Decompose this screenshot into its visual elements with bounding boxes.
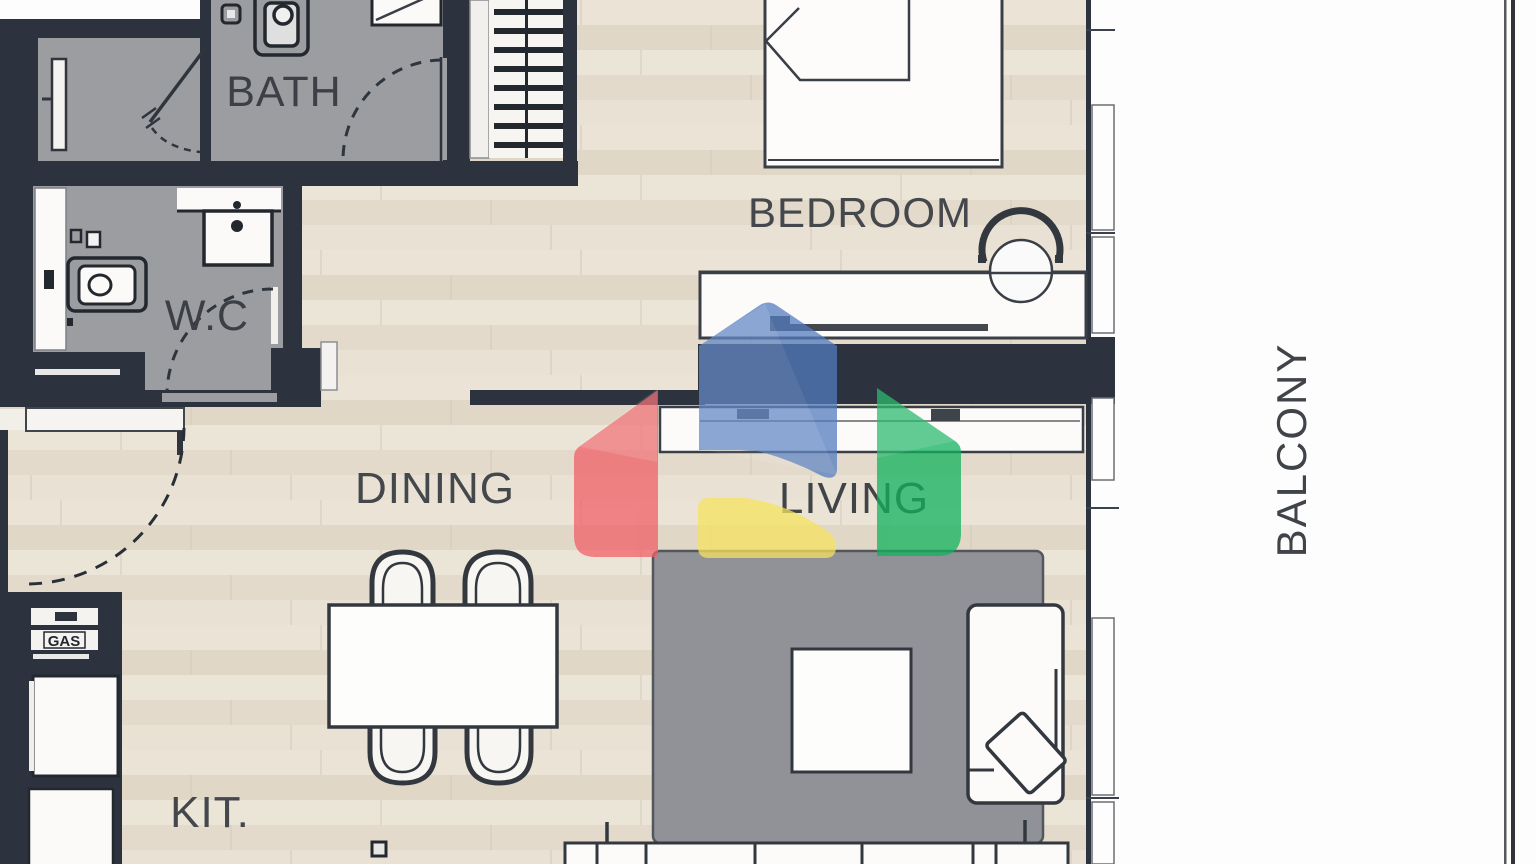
svg-text:BEDROOM: BEDROOM — [748, 189, 972, 236]
svg-text:BALCONY: BALCONY — [1268, 343, 1315, 558]
svg-text:KIT.: KIT. — [170, 788, 250, 837]
svg-text:W.C: W.C — [165, 292, 249, 340]
svg-text:BATH: BATH — [226, 68, 342, 116]
svg-text:DINING: DINING — [355, 464, 515, 513]
